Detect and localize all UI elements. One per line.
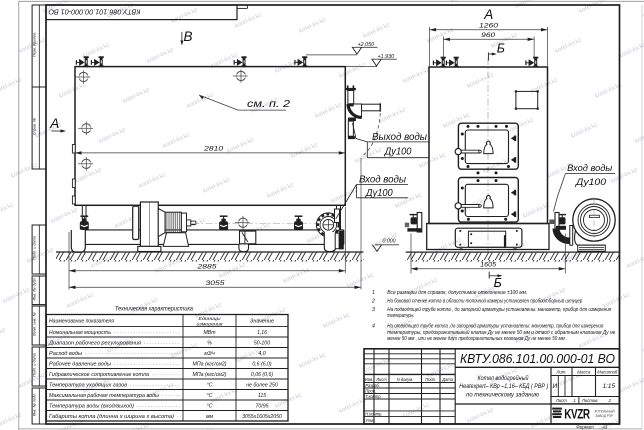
svg-text:измерения: измерения [197, 322, 223, 327]
svg-text:не более 250: не более 250 [246, 382, 278, 388]
svg-text:мм: мм [206, 414, 214, 420]
svg-text:Т.контр.: Т.контр. [365, 394, 382, 399]
svg-text:ЗАВОД РЗР: ЗАВОД РЗР [595, 414, 613, 418]
svg-text:А: А [483, 7, 493, 22]
svg-text:На отводящей трубе котла ,до з: На отводящей трубе котла ,до запорной ар… [387, 323, 603, 330]
svg-text:3055х1605х2050: 3055х1605х2050 [242, 414, 282, 420]
svg-text:КВТУ.086.101.00.000-01 ВО: КВТУ.086.101.00.000-01 ВО [48, 8, 140, 17]
svg-text:4: 4 [372, 324, 375, 330]
svg-text:Наименование показателя: Наименование показателя [49, 319, 114, 325]
svg-text:Выход воды: Выход воды [372, 132, 428, 143]
svg-text:температуры.: температуры. [387, 313, 414, 319]
svg-text:Гидравлическое сопротивление к: Гидравлическое сопротивление котла [49, 372, 149, 378]
svg-text:Расход воды: Расход воды [49, 351, 82, 357]
svg-text:Лит.: Лит. [555, 369, 566, 374]
svg-text:Б: Б [497, 41, 505, 55]
svg-text:Температура уходящих газов: Температура уходящих газов [49, 382, 127, 388]
svg-text:0,6 (6,0): 0,6 (6,0) [252, 361, 272, 367]
svg-text:Лист: Лист [375, 377, 387, 382]
svg-text:Рабочее давление воды: Рабочее давление воды [49, 361, 111, 367]
svg-text:3: 3 [372, 307, 375, 313]
svg-text:В: В [184, 29, 193, 44]
svg-text:Справ. №: Справ. № [33, 118, 37, 135]
svg-text:Н.контр.: Н.контр. [365, 412, 382, 417]
svg-text:Масштаб: Масштаб [597, 369, 618, 374]
svg-text:см. п. 2: см. п. 2 [247, 99, 291, 110]
svg-text:4,0: 4,0 [258, 351, 265, 357]
svg-text:+2.050: +2.050 [358, 42, 375, 48]
svg-text:На подводящей трубе котла ,: На подводящей трубе котла , до запорной … [387, 306, 611, 313]
svg-text:1605: 1605 [480, 261, 497, 268]
svg-text:1260: 1260 [479, 22, 499, 29]
svg-text:Взам. инв. №: Взам. инв. № [33, 312, 37, 335]
svg-text:0.000: 0.000 [383, 238, 396, 244]
svg-text:Ду100: Ду100 [384, 147, 412, 158]
svg-text:Все размеры для справок, допус: Все размеры для справок, допустимое откл… [387, 290, 527, 296]
svg-text:И: И [553, 383, 558, 390]
svg-text:м3/ч: м3/ч [204, 351, 215, 357]
svg-text:115: 115 [258, 393, 266, 399]
svg-text:Температура воды (вход/выход): Температура воды (вход/выход) [49, 403, 134, 409]
svg-text:1:15: 1:15 [603, 383, 616, 390]
svg-text:Вход воды: Вход воды [359, 174, 407, 185]
svg-text:МПа (кгс/см2): МПа (кгс/см2) [193, 361, 227, 367]
svg-text:Пров.: Пров. [365, 389, 376, 394]
svg-text:N докум.: N докум. [397, 377, 414, 382]
svg-text:0,06 (0,6): 0,06 (0,6) [251, 372, 273, 378]
svg-text:Инв. № дубл.: Инв. № дубл. [33, 277, 37, 300]
svg-text:70/95: 70/95 [256, 403, 269, 409]
svg-text:KVZR: KVZR [564, 406, 590, 421]
svg-text:Утв.: Утв. [365, 418, 374, 423]
svg-text:Подп.: Подп. [425, 377, 436, 382]
svg-text:Перв. примен.: Перв. примен. [33, 32, 37, 57]
svg-text:На боковой стенке котла в обла: На боковой стенке котла в области топочн… [387, 297, 582, 304]
svg-text:+1.930: +1.930 [378, 54, 395, 60]
svg-text:Подп. и дата: Подп. и дата [33, 236, 37, 260]
svg-text:3055: 3055 [206, 280, 226, 287]
svg-text:КОТЕЛЬНЫЙ: КОТЕЛЬНЫЙ [595, 409, 616, 413]
svg-text:Единицы: Единицы [199, 316, 221, 322]
svg-text:Ду100: Ду100 [365, 188, 393, 199]
svg-text:Номинальная мощность: Номинальная мощность [49, 330, 111, 336]
svg-text:Максимальная рабочая температу: Максимальная рабочая температура воды [49, 393, 159, 399]
svg-text:МВт: МВт [203, 330, 216, 336]
svg-text:°С: °С [207, 393, 213, 399]
svg-text:Значение: Значение [250, 319, 274, 325]
svg-text:Вход воды: Вход воды [567, 163, 613, 173]
svg-text:Подп. и дата: Подп. и дата [33, 353, 37, 377]
svg-text:Разраб.: Разраб. [365, 383, 380, 388]
svg-text:А: А [49, 116, 59, 131]
svg-text:А3: А3 [601, 424, 608, 429]
svg-text:Инв. № подл.: Инв. № подл. [33, 393, 37, 417]
svg-text:2885: 2885 [196, 263, 217, 270]
svg-text:Техническая характеристика: Техническая характеристика [115, 305, 194, 312]
svg-text:температуры, предохранительный: температуры, предохранительный клапан Ду… [387, 329, 615, 336]
svg-text:Масса: Масса [577, 369, 591, 374]
svg-text:Ду100: Ду100 [575, 176, 607, 187]
svg-text:50-100: 50-100 [254, 340, 270, 346]
svg-text:1: 1 [372, 290, 375, 296]
svg-text:Б: Б [494, 276, 502, 290]
svg-text:МПа (кгс/см2): МПа (кгс/см2) [193, 372, 227, 378]
svg-text:960: 960 [481, 32, 496, 39]
svg-text:Лист: Лист [555, 398, 567, 403]
svg-text:Диапазон рабочего регулировани: Диапазон рабочего регулирования [48, 340, 141, 346]
svg-text:Heatexpert– КВр –1,16– КБД ( Р: Heatexpert– КВр –1,16– КБД ( РВР ) [459, 383, 548, 390]
svg-text:1,16: 1,16 [257, 330, 267, 336]
svg-text:Листов: Листов [581, 398, 598, 403]
svg-text:Котел водогрейный: Котел водогрейный [478, 374, 529, 382]
svg-text:Изм.: Изм. [365, 377, 374, 382]
svg-text:2810: 2810 [203, 146, 224, 153]
svg-text:по техническому заданию: по техническому заданию [466, 391, 539, 399]
svg-text:2: 2 [371, 298, 375, 304]
svg-text:%: % [207, 340, 212, 346]
svg-text:КВТУ.086.101.00.000-01 ВО: КВТУ.086.101.00.000-01 ВО [460, 351, 615, 366]
svg-text:Габариты котла (длинна х шир: Габариты котла (длинна х ширина х высота… [49, 414, 174, 420]
svg-text:°С: °С [207, 382, 213, 388]
svg-text:менее 50 мм , или не менее дв: менее 50 мм , или не менее двух предохра… [387, 336, 567, 342]
svg-text:°С: °С [207, 403, 213, 409]
svg-text:Формат: Формат [576, 424, 594, 429]
svg-text:Дата: Дата [441, 377, 454, 382]
